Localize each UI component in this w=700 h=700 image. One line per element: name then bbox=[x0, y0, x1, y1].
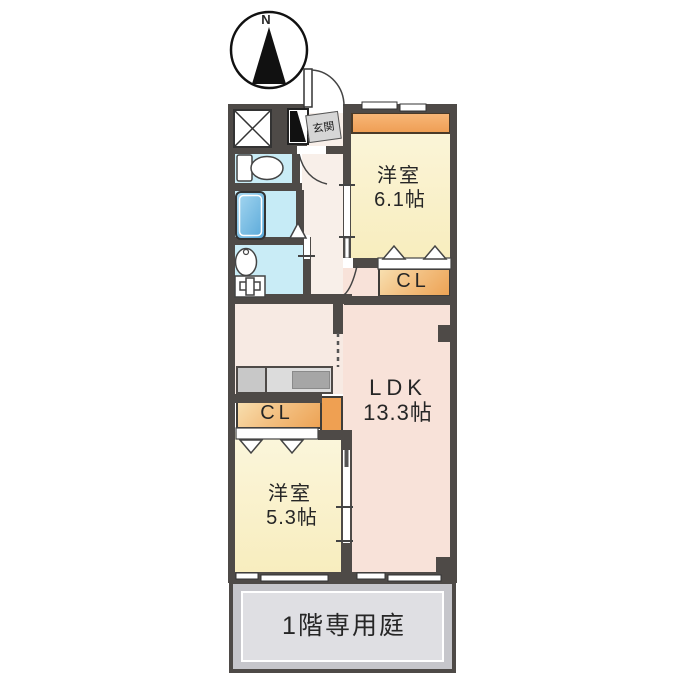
wall-right bbox=[450, 104, 457, 583]
window-bottom-2 bbox=[261, 575, 328, 581]
hall-door-opening bbox=[297, 146, 326, 154]
closet-right-fold-2 bbox=[424, 246, 446, 259]
room-6-1-size: 6.1帖 bbox=[374, 190, 426, 211]
closet-left-label: CL bbox=[260, 403, 294, 424]
ldk-name: LDK bbox=[369, 376, 427, 399]
window-bottom-3 bbox=[357, 573, 385, 579]
room61-door-opening bbox=[344, 186, 350, 238]
room-5-3-name: 洋室 bbox=[268, 484, 312, 505]
floor-plan: N 玄関 洋室 6.1帖 CL LDK 13.3帖 CL 洋室 5.3帖 1階専… bbox=[0, 0, 700, 700]
wall-left bbox=[228, 104, 235, 583]
wall-notch-mid bbox=[438, 325, 453, 342]
toilet-tank bbox=[237, 155, 252, 181]
closet-left-doors bbox=[236, 428, 318, 453]
closet-left-fold-2 bbox=[281, 440, 303, 453]
washer-pan-cross-v bbox=[246, 278, 254, 295]
toilet-icon bbox=[237, 155, 283, 181]
bathtub-icon bbox=[236, 192, 265, 239]
compass-label: N bbox=[261, 13, 270, 27]
garden-label: 1階専用庭 bbox=[282, 613, 406, 639]
pipe-space-icon bbox=[234, 110, 271, 147]
wall-notch-corner bbox=[436, 557, 453, 573]
ldk-door-opening bbox=[343, 258, 353, 268]
ldk-size: 13.3帖 bbox=[363, 401, 433, 424]
washer-pan-icon bbox=[235, 276, 265, 297]
window-bottom-1 bbox=[236, 573, 258, 579]
closet-right-label: CL bbox=[396, 271, 430, 292]
sink-faucet bbox=[244, 250, 249, 255]
closet-left-fold-1 bbox=[240, 440, 262, 453]
toilet-bowl bbox=[251, 157, 283, 180]
plan-linework bbox=[0, 0, 700, 700]
window-top-2 bbox=[400, 104, 426, 111]
closet-right-doors bbox=[378, 246, 451, 269]
room-6-1-name: 洋室 bbox=[377, 166, 421, 187]
bathtub-outer bbox=[236, 192, 265, 239]
hall-door-arc bbox=[299, 154, 327, 184]
genkan-label-text: 玄関 bbox=[311, 118, 335, 137]
sink-icon bbox=[236, 249, 257, 276]
genkan-label: 玄関 bbox=[305, 111, 342, 143]
closet-right-fold-1 bbox=[383, 246, 405, 259]
wall-cl-right-bottom bbox=[344, 296, 457, 305]
room61-door-panel bbox=[345, 238, 349, 258]
room-5-3-size: 5.3帖 bbox=[266, 508, 318, 529]
closet-left-track bbox=[236, 428, 318, 439]
entrance-door-arc bbox=[312, 70, 344, 106]
shoe-cabinet-icon bbox=[288, 109, 308, 144]
wall-kitchen-right bbox=[333, 302, 343, 334]
window-top-1 bbox=[362, 102, 397, 109]
room53-door-panel bbox=[345, 450, 349, 467]
entrance-door-leaf bbox=[304, 69, 312, 107]
ldk-door-arc bbox=[344, 266, 357, 295]
wall-toilet-bottom bbox=[228, 183, 302, 191]
window-bottom-4 bbox=[388, 575, 441, 581]
